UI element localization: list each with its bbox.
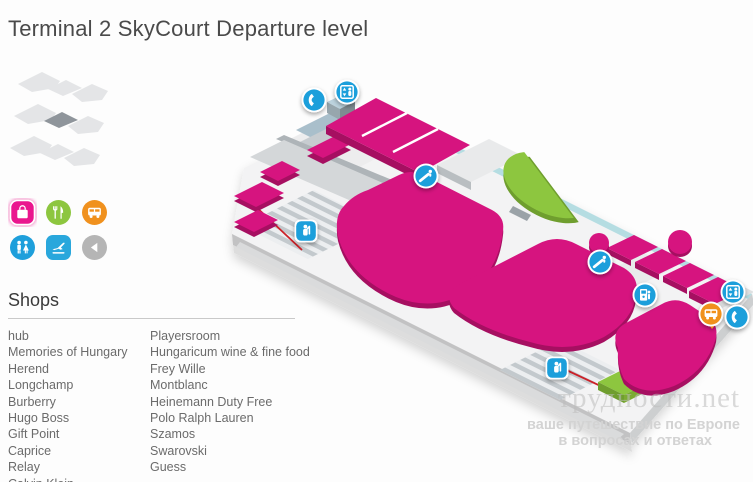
map-marker-atm[interactable] xyxy=(633,283,658,308)
restroom-icon xyxy=(10,235,35,260)
shop-list-item: Herend xyxy=(8,361,150,377)
shop-list-item: Longchamp xyxy=(8,377,150,393)
page-title: Terminal 2 SkyCourt Departure level xyxy=(8,16,368,42)
shop-list-item: Playersroom xyxy=(150,328,292,344)
map-marker-telephone-east[interactable] xyxy=(725,305,750,330)
shop-list-item: hub xyxy=(8,328,150,344)
shop-list-item: Hugo Boss xyxy=(8,410,150,426)
shops-heading: Shops xyxy=(8,290,308,311)
shop-list-item: Hungaricum wine & fine food xyxy=(150,344,292,360)
shops-column-1: hubMemories of HungaryHerendLongchampBur… xyxy=(8,328,150,482)
shop-list-item: Guess xyxy=(150,459,292,475)
legend-restrooms-button[interactable] xyxy=(8,233,37,262)
map-marker-elevator-east[interactable] xyxy=(721,280,746,305)
map-marker-escalator-east[interactable] xyxy=(588,250,613,275)
page: Terminal 2 SkyCourt Departure level xyxy=(0,0,753,482)
shop-list-item: Swarovski xyxy=(150,443,292,459)
shop-list-item: Frey Wille xyxy=(150,361,292,377)
legend-restaurants-button[interactable] xyxy=(44,198,73,227)
shop-list-item: Polo Ralph Lauren xyxy=(150,410,292,426)
map-marker-elevator-upper[interactable] xyxy=(335,80,360,105)
level-option-upper[interactable] xyxy=(18,72,108,102)
map-marker-telephone-upper[interactable] xyxy=(302,88,327,113)
legend-back-button[interactable] xyxy=(80,233,109,262)
shop-list-item: Gift Point xyxy=(8,426,150,442)
shop-list-item: Szamos xyxy=(150,426,292,442)
shop-list-item: Burberry xyxy=(8,394,150,410)
shop-list-item: Caprice xyxy=(8,443,150,459)
fork-knife-icon xyxy=(46,200,71,225)
shop-list-item: Memories of Hungary xyxy=(8,344,150,360)
shop-list-item: Relay xyxy=(8,459,150,475)
legend-shops-button[interactable] xyxy=(8,198,37,227)
level-selector xyxy=(8,64,112,168)
level-option-departure-active[interactable] xyxy=(14,104,104,134)
shops-column-2: PlayersroomHungaricum wine & fine foodFr… xyxy=(150,328,292,482)
map-marker-escalator-center[interactable] xyxy=(414,164,439,189)
shop-list-item: Calvin Klein xyxy=(8,476,150,482)
divider xyxy=(8,318,295,319)
legend-departures-button[interactable] xyxy=(44,233,73,262)
map-marker-security-check-south[interactable] xyxy=(546,357,569,380)
map-marker-security-check-west[interactable] xyxy=(295,220,318,243)
shops-panel: Shops hubMemories of HungaryHerendLongch… xyxy=(8,290,308,482)
shop-list-item: Heinemann Duty Free xyxy=(150,394,292,410)
shop-list-item: Montblanc xyxy=(150,377,292,393)
level-option-lower[interactable] xyxy=(10,136,100,166)
legend-transport-button[interactable] xyxy=(80,198,109,227)
legend xyxy=(8,198,109,262)
